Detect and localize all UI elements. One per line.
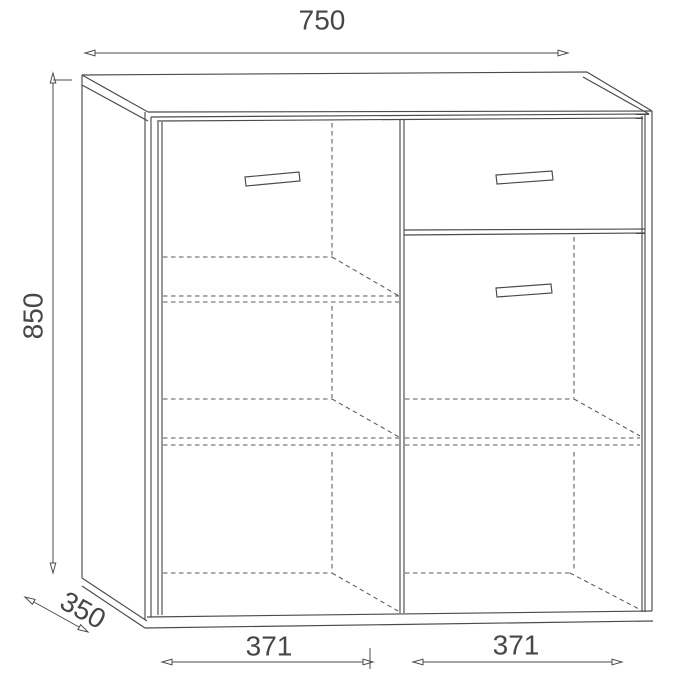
dimension-label-depth: 350 <box>55 585 111 635</box>
top-right-slope-outer <box>587 72 652 111</box>
left-door <box>158 122 300 615</box>
technical-drawing-canvas: 750 850 350 371 371 <box>0 0 700 700</box>
dimension-label-left-width: 371 <box>246 631 293 662</box>
drawer-handle <box>496 171 553 184</box>
front-frame <box>145 111 653 628</box>
right-drawer <box>404 171 645 235</box>
shelf-side-edge <box>332 257 399 296</box>
front-bottom-edge-lower <box>145 621 653 628</box>
front-top-rail-a <box>151 114 649 117</box>
left-side-panel <box>82 75 147 628</box>
right-door <box>496 284 552 297</box>
top-left-slope-inner <box>82 85 148 121</box>
drawer-bottom-rail-b <box>404 233 645 235</box>
shelf-side-edge <box>332 573 398 611</box>
dimension-right-compartment-width: 371 <box>413 630 622 663</box>
cabinet-top-face <box>82 72 652 121</box>
top-left-slope-outer <box>82 75 148 112</box>
right-door-handle <box>496 284 552 297</box>
dimension-overall-width: 750 <box>85 5 568 54</box>
dimension-depth: 350 <box>25 585 111 635</box>
top-back-edge <box>82 72 587 75</box>
dimension-overall-height: 850 <box>18 73 73 573</box>
shelf-side-edge <box>574 399 640 436</box>
top-right-slope-inner <box>583 77 649 114</box>
dimension-label-right-width: 371 <box>493 630 540 661</box>
dimension-left-compartment-width: 371 <box>162 631 373 670</box>
shelf-side-edge <box>570 573 639 609</box>
top-front-edge <box>148 111 652 112</box>
left-door-handle <box>245 172 300 186</box>
dimension-label-overall-height: 850 <box>18 293 49 340</box>
drawer-bottom-rail-a <box>404 229 645 230</box>
left-compartment-hidden-lines <box>163 123 399 611</box>
shelf-side-edge <box>332 399 399 437</box>
technical-drawing-page: 750 850 350 371 371 <box>0 0 700 700</box>
dimension-label-overall-width: 750 <box>299 5 346 36</box>
